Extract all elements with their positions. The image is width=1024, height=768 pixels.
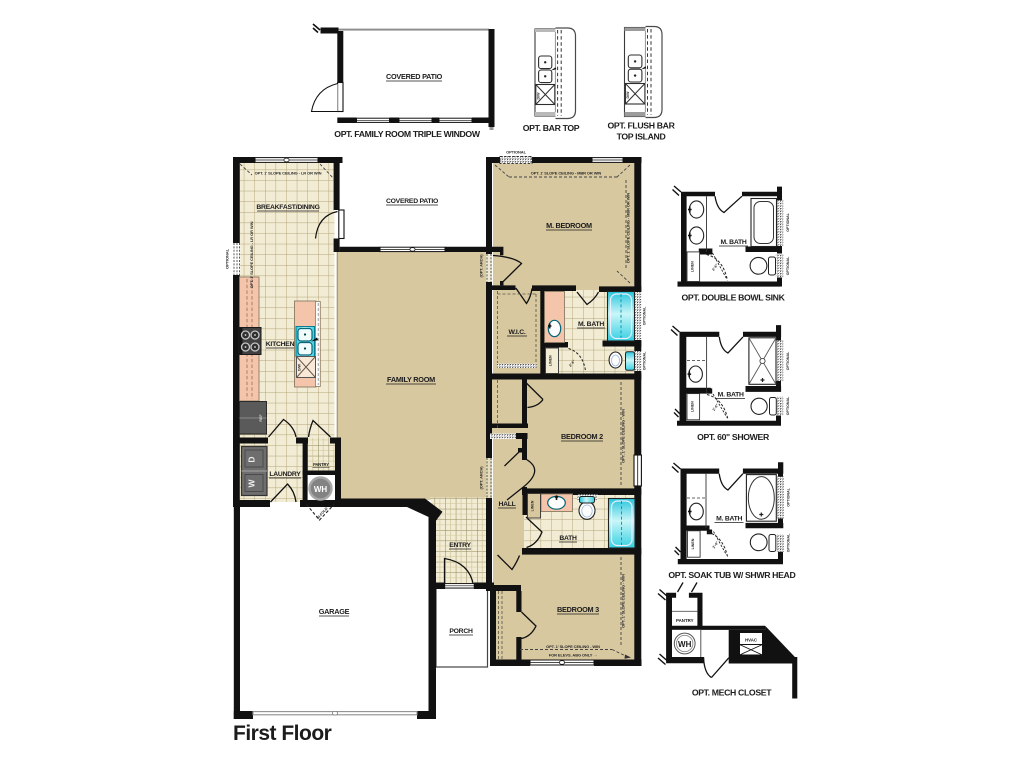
svg-text:OPT. 1' SLOPE CEILING - WIN: OPT. 1' SLOPE CEILING - WIN	[621, 574, 626, 628]
svg-text:BEDROOM 3: BEDROOM 3	[557, 605, 599, 614]
svg-text:OPT. MECH CLOSET: OPT. MECH CLOSET	[692, 688, 772, 698]
svg-text:WH: WH	[678, 640, 692, 649]
svg-text:KITCHEN: KITCHEN	[266, 341, 295, 348]
svg-text:OPT. 60" SHOWER: OPT. 60" SHOWER	[697, 432, 770, 442]
svg-text:OPTIONAL: OPTIONAL	[787, 533, 791, 552]
svg-text:D/W: D/W	[537, 92, 541, 100]
svg-text:BATH: BATH	[559, 535, 577, 542]
svg-text:2'-6": 2'-6"	[712, 540, 720, 549]
svg-text:ENTRY: ENTRY	[449, 542, 471, 549]
svg-text:M. BATH: M. BATH	[716, 516, 742, 523]
svg-text:LINEN: LINEN	[690, 401, 694, 412]
svg-text:2'-6": 2'-6"	[712, 403, 720, 412]
svg-text:M. BATH: M. BATH	[578, 321, 604, 328]
svg-text:COVERED PATIO: COVERED PATIO	[386, 72, 443, 81]
svg-text:OPT. 1' SLOPE CEILING - LR OR: OPT. 1' SLOPE CEILING - LR OR WIN	[249, 221, 254, 288]
svg-text:LINEN: LINEN	[531, 500, 535, 511]
svg-text:PANTRY: PANTRY	[676, 618, 694, 623]
svg-text:W: W	[247, 479, 257, 488]
svg-text:OPT. 1' SLOPE CEILING - MBR OR: OPT. 1' SLOPE CEILING - MBR OR WIN	[531, 171, 602, 176]
svg-text:OPT. SOAK TUB W/ SHWR HEAD: OPT. SOAK TUB W/ SHWR HEAD	[668, 570, 795, 580]
svg-text:M. BEDROOM: M. BEDROOM	[546, 221, 592, 230]
svg-text:FAMILY ROOM: FAMILY ROOM	[387, 375, 435, 384]
svg-text:OPT. 1' SLOPE CEILING - WIN: OPT. 1' SLOPE CEILING - WIN	[621, 409, 626, 463]
svg-text:PANTRY: PANTRY	[313, 462, 329, 467]
svg-text:OPTIONAL: OPTIONAL	[786, 396, 790, 415]
svg-text:PORCH: PORCH	[449, 628, 473, 635]
svg-text:OPT. DOUBLE BOWL SINK: OPT. DOUBLE BOWL SINK	[681, 293, 785, 303]
svg-text:OPTIONAL: OPTIONAL	[225, 248, 230, 269]
svg-text:D: D	[247, 456, 257, 462]
svg-text:COVERED PATIO: COVERED PATIO	[386, 198, 438, 205]
svg-text:First Floor: First Floor	[233, 722, 332, 745]
svg-text:OPT. BAR TOP: OPT. BAR TOP	[523, 123, 580, 133]
svg-text:WH: WH	[314, 485, 328, 494]
svg-text:LINEN: LINEN	[691, 538, 695, 549]
svg-text:HALL: HALL	[498, 501, 515, 508]
svg-text:HVAC: HVAC	[745, 638, 758, 643]
svg-text:REF: REF	[259, 414, 263, 422]
svg-text:LINEN: LINEN	[690, 261, 694, 272]
svg-text:OPTIONAL: OPTIONAL	[786, 256, 790, 275]
svg-text:GARAGE: GARAGE	[319, 607, 350, 616]
svg-text:OPTIONAL: OPTIONAL	[643, 306, 647, 325]
svg-text:W.I.C.: W.I.C.	[508, 329, 525, 336]
svg-text:OPT. FAMILY ROOM TRIPLE WINDOW: OPT. FAMILY ROOM TRIPLE WINDOW	[334, 129, 481, 139]
svg-text:OPT. FLUSH BAR: OPT. FLUSH BAR	[607, 121, 675, 131]
svg-text:OPT. 1' SLOPE CEILING - WIN: OPT. 1' SLOPE CEILING - WIN	[546, 644, 600, 649]
svg-text:M. BATH: M. BATH	[720, 239, 746, 246]
svg-text:D/W: D/W	[298, 363, 302, 371]
svg-text:LAUNDRY: LAUNDRY	[269, 471, 301, 478]
svg-text:BREAKFAST/DINING: BREAKFAST/DINING	[256, 204, 319, 211]
svg-text:(OPT. ARCH): (OPT. ARCH)	[479, 466, 484, 490]
svg-text:(OPT. ARCH): (OPT. ARCH)	[479, 254, 484, 278]
svg-text:BI-FOLD: BI-FOLD	[316, 506, 329, 520]
svg-text:LINEN: LINEN	[549, 355, 553, 366]
svg-text:D/W: D/W	[626, 91, 630, 99]
svg-text:OPT. 1' SLOPE CEILING - LR OR: OPT. 1' SLOPE CEILING - LR OR WIN	[255, 171, 322, 176]
svg-text:OPT. 1' SLOPE CEILING - MBR OR: OPT. 1' SLOPE CEILING - MBR OR WIN	[626, 193, 631, 264]
svg-text:TOP ISLAND: TOP ISLAND	[617, 132, 666, 142]
svg-text:OPTIONAL: OPTIONAL	[786, 212, 790, 231]
svg-text:OPTIONAL: OPTIONAL	[643, 351, 647, 370]
svg-text:M. BATH: M. BATH	[718, 392, 744, 399]
svg-text:2'-6": 2'-6"	[711, 263, 719, 272]
svg-text:BEDROOM 2: BEDROOM 2	[561, 432, 603, 441]
svg-text:OPTIONAL: OPTIONAL	[787, 487, 791, 506]
svg-text:OPTIONAL: OPTIONAL	[506, 150, 527, 155]
svg-text:FOR ELEVS. ABG ONLY →: FOR ELEVS. ABG ONLY →	[549, 653, 598, 658]
svg-text:OPTIONAL: OPTIONAL	[786, 351, 790, 370]
